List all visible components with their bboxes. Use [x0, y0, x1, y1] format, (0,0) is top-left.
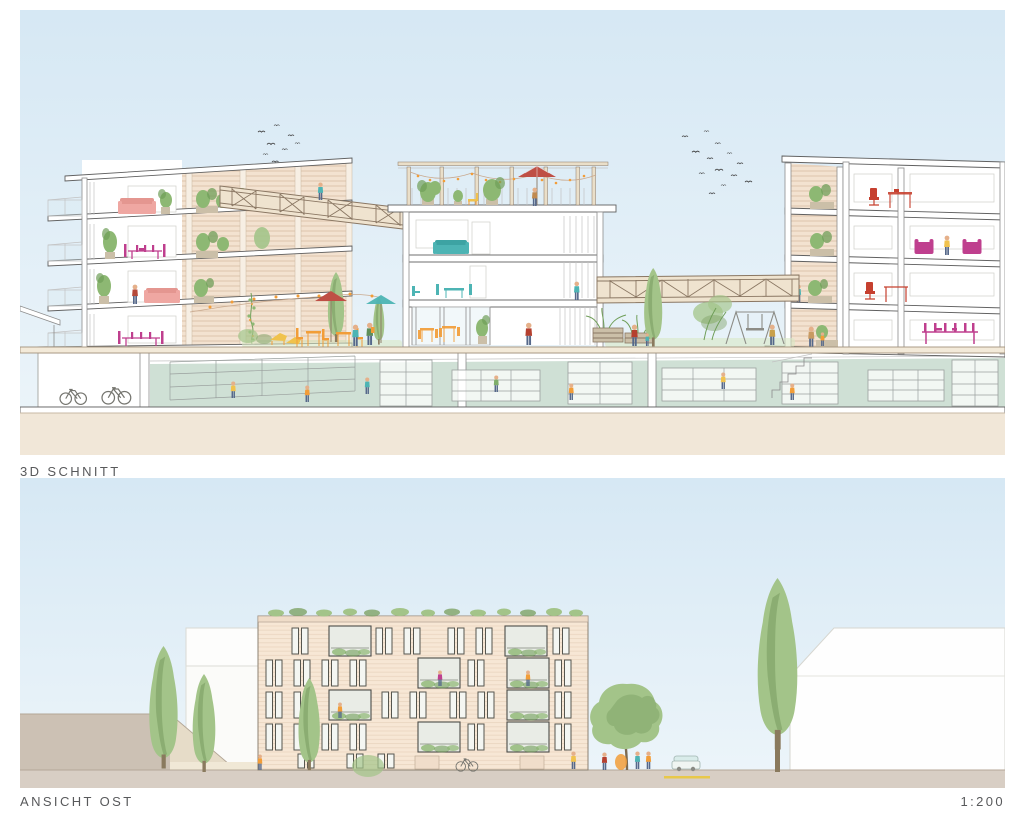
background-building-right: [790, 628, 1005, 770]
scale-label: 1:200: [960, 794, 1005, 809]
elevation-east-drawing: [20, 478, 1005, 788]
truss-bridge-right: [597, 275, 799, 303]
basement-level: [20, 353, 1005, 455]
floor2-pink-sofa: [144, 288, 180, 303]
shrub: [352, 755, 384, 777]
teal-sofa: [433, 240, 469, 254]
section-caption: 3D SCHNITT: [20, 464, 121, 479]
presentation-board: 3D SCHNITT: [0, 0, 1024, 822]
ground-band: [20, 413, 1005, 455]
orange-shrub: [615, 754, 627, 770]
elevation-east-panel: [20, 478, 1005, 788]
ground-walkway: [20, 347, 1005, 353]
vehicle: [672, 756, 700, 771]
basement-slab: [20, 407, 1005, 413]
section-3d-panel: [20, 10, 1005, 455]
road-marking: [664, 776, 710, 779]
floor4-pink-sofa: [118, 198, 156, 214]
section-3d-drawing: [20, 10, 1005, 455]
elevation-caption: ANSICHT OST: [20, 794, 134, 809]
